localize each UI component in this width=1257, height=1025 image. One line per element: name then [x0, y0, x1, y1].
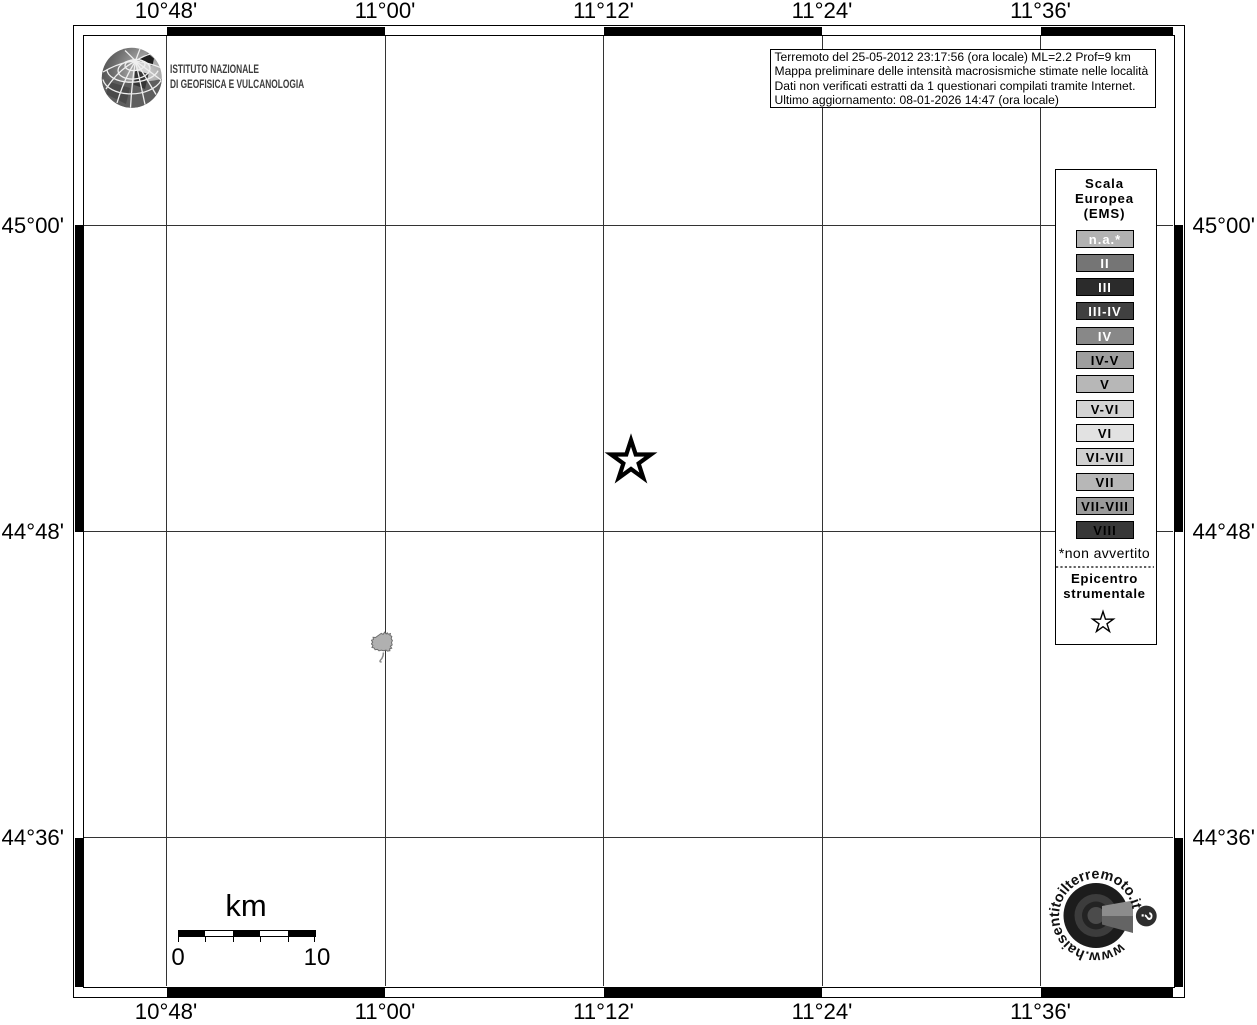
- svg-text:?: ?: [1137, 911, 1154, 921]
